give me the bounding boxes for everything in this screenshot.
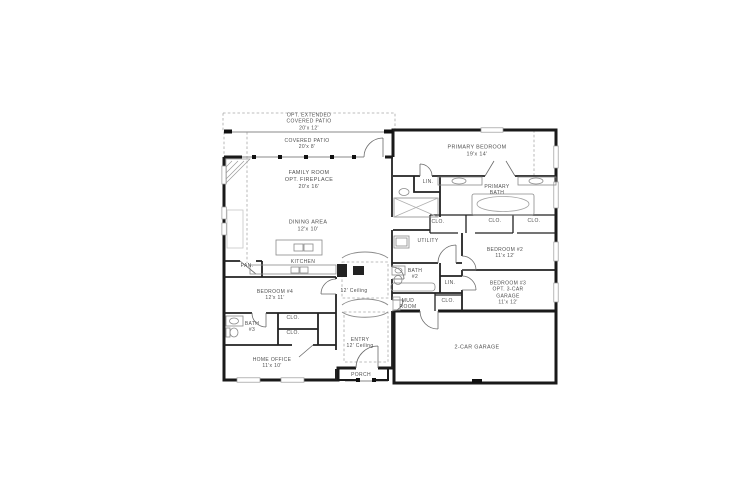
floor-plan-page: OPT. EXTENDED COVERED PATIO 20'x 12' COV…	[0, 0, 740, 480]
label-dining-area: DINING AREA 12'x 10'	[289, 219, 328, 233]
label-bath-2: BATH #2	[408, 268, 422, 281]
floor-plan-drawing	[0, 0, 740, 480]
label-bath-3: BATH #3	[245, 321, 259, 334]
label-closet-1: CLO.	[431, 219, 444, 225]
fireplace-hatch	[226, 159, 250, 183]
label-entry: ENTRY 12' Ceiling	[346, 337, 373, 350]
label-family-room: FAMILY ROOM OPT. FIREPLACE 20'x 16'	[285, 170, 333, 190]
label-porch: PORCH	[351, 372, 371, 378]
label-closet-4: CLO.	[441, 298, 454, 304]
label-bedroom-3: BEDROOM #3 OPT. 3-CAR GARAGE 11'x 12'	[490, 281, 526, 306]
primary-bath-fixtures	[394, 177, 556, 217]
label-closet-6: CLO.	[286, 330, 299, 336]
label-pantry: PAN.	[241, 263, 254, 269]
label-linen-closet-1: LIN.	[423, 179, 434, 185]
kitchen-cabinet-blocks	[337, 264, 364, 277]
label-closet-5: CLO.	[286, 315, 299, 321]
label-primary-bedroom: PRIMARY BEDROOM 19'x 14'	[448, 144, 507, 158]
label-closet-2: CLO.	[488, 218, 501, 224]
label-opt-extended-covered-patio: OPT. EXTENDED COVERED PATIO 20'x 12'	[287, 113, 332, 132]
label-hall-ceiling: 12' Ceiling	[340, 288, 367, 294]
label-linen-closet-2: LIN.	[445, 280, 456, 286]
label-primary-bath: PRIMARY BATH	[484, 184, 509, 197]
label-garage: 2-CAR GARAGE	[455, 345, 500, 352]
label-mud-room: MUD ROOM	[400, 298, 417, 311]
utility-fixtures	[394, 236, 409, 248]
label-closet-3: CLO.	[527, 218, 540, 224]
label-home-office: HOME OFFICE 11'x 10'	[253, 357, 292, 370]
label-covered-patio: COVERED PATIO 20'x 8'	[285, 138, 330, 151]
label-utility: UTILITY	[417, 238, 438, 244]
label-bedroom-2: BEDROOM #2 11'x 12'	[487, 247, 523, 260]
bath3-fixtures	[226, 316, 243, 337]
label-bedroom-4: BEDROOM #4 12'x 11'	[257, 289, 293, 302]
label-kitchen: KITCHEN	[291, 259, 315, 265]
